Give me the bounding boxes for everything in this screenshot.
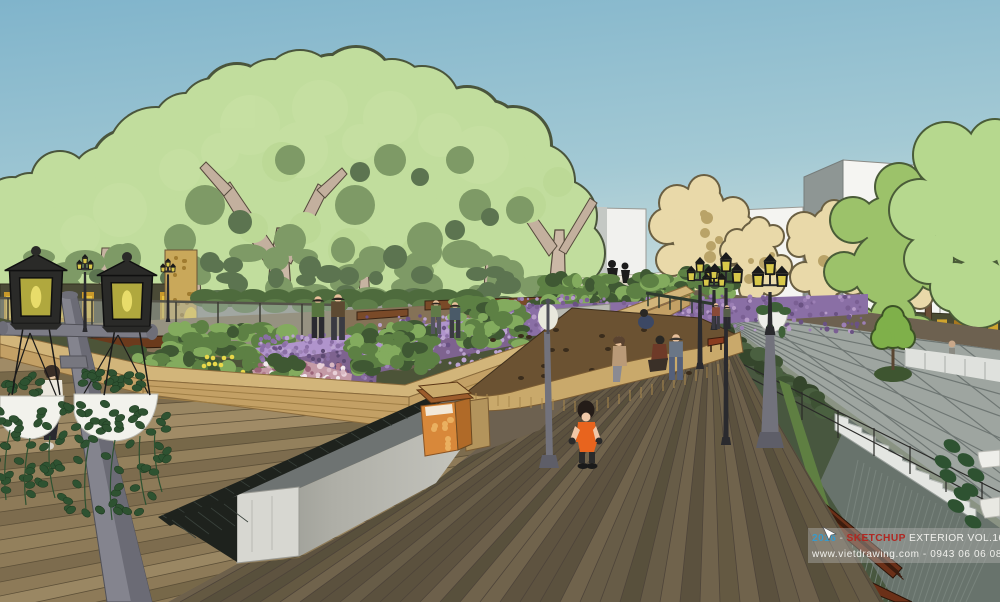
svg-text:2016 - SKETCHUP EXTERIOR VOL.1: 2016 - SKETCHUP EXTERIOR VOL.16 <box>812 533 1000 544</box>
svg-text:www.vietdrawing.com - 0943 06: www.vietdrawing.com - 0943 06 06 08 <box>811 549 1000 560</box>
